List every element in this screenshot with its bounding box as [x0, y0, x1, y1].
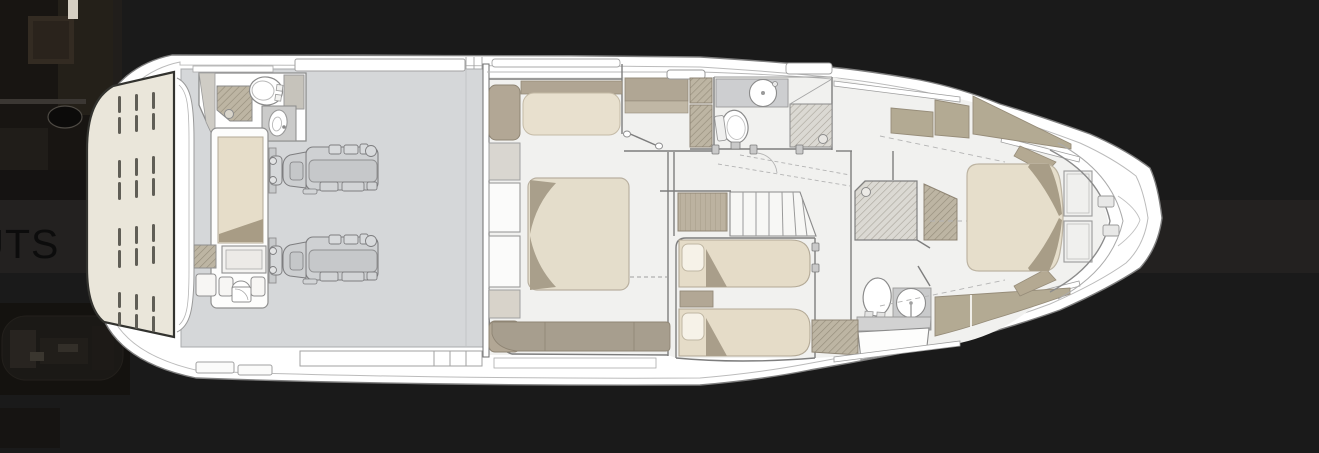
svg-text:LAYOUTS: LAYOUTS [0, 221, 59, 267]
